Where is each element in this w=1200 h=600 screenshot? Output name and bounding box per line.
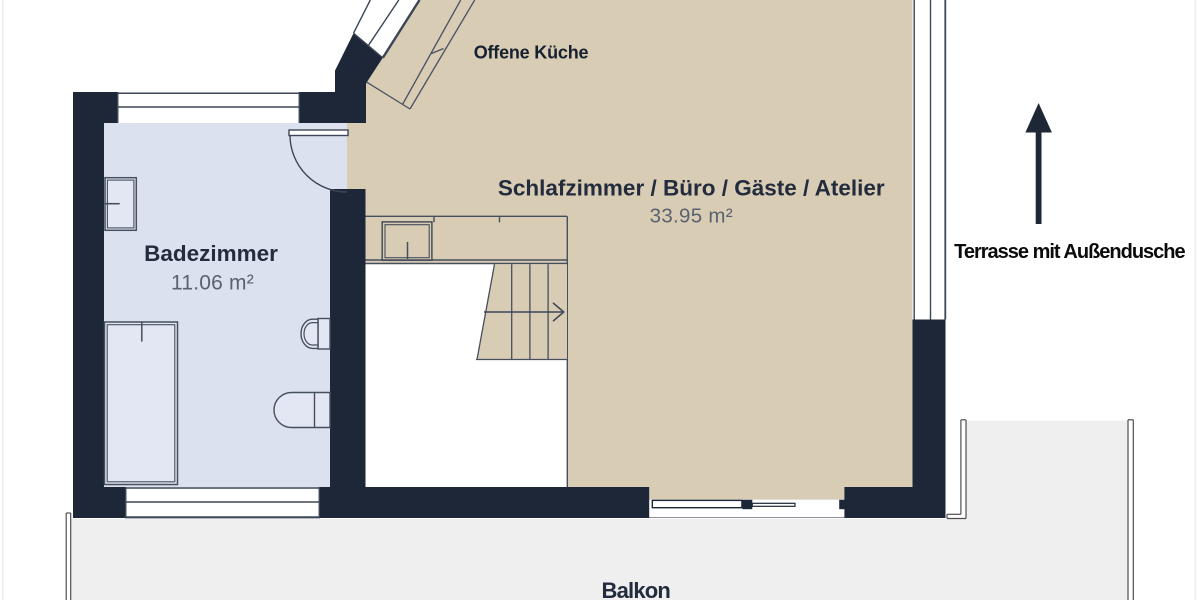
svg-text:Balkon: Balkon bbox=[602, 578, 671, 600]
svg-text:Terrasse mit Außendusche: Terrasse mit Außendusche bbox=[954, 241, 1185, 263]
svg-text:Badezimmer: Badezimmer bbox=[144, 241, 278, 266]
svg-text:Offene Küche: Offene Küche bbox=[474, 43, 589, 63]
svg-text:Schlafzimmer / Büro / Gäste /: Schlafzimmer / Büro / Gäste / Atelier bbox=[498, 176, 885, 201]
svg-text:33.95 m²: 33.95 m² bbox=[650, 205, 733, 228]
svg-text:11.06 m²: 11.06 m² bbox=[171, 272, 254, 295]
